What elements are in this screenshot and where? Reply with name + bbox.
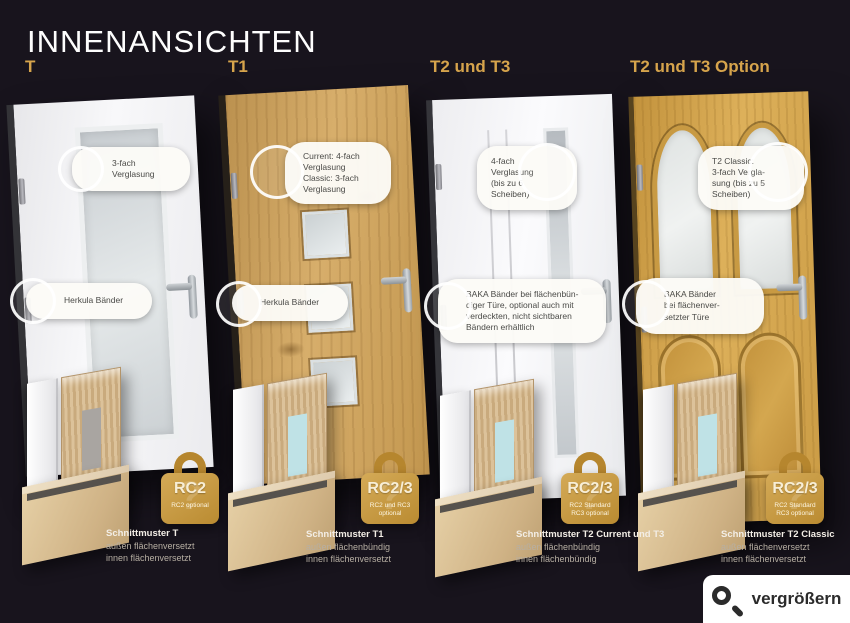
rc-lock-badge-t2t3-option: ? RC2/3 RC2 Standard RC3 optional	[766, 452, 824, 526]
callout-text: 3-fach Verglasung	[112, 158, 155, 180]
caption-t2t3: Schnittmuster T2 Current und T3 außen fl…	[516, 528, 676, 566]
callout-ring	[10, 278, 56, 324]
door-handle-icon	[402, 268, 412, 312]
hinge-icon	[435, 164, 442, 190]
glass-square	[301, 209, 349, 258]
callout-ring	[424, 282, 472, 330]
zoom-button[interactable]: vergrößern	[703, 575, 850, 623]
page: INNENANSICHTEN T T1 T2 und T3 T2 und T3 …	[0, 0, 850, 623]
lock-rating: RC2/3	[361, 480, 419, 498]
callout-text: Herkula Bänder	[260, 297, 319, 308]
door-handle-icon	[188, 274, 198, 318]
caption-t: Schnittmuster T außen flächenversetzt in…	[106, 527, 246, 565]
caption-title: Schnittmuster T2 Classic	[721, 528, 850, 541]
caption-line: außen flächenversetzt	[721, 541, 850, 553]
column-header-t: T	[25, 57, 35, 77]
callout-ring	[748, 142, 808, 202]
callout-ring	[622, 280, 670, 328]
caption-title: Schnittmuster T2 Current und T3	[516, 528, 676, 541]
caption-t2t3-option: Schnittmuster T2 Classic außen flächenve…	[721, 528, 850, 566]
caption-line: innen flächenbündig	[516, 553, 676, 565]
magnifier-icon	[712, 584, 742, 614]
callout-text: BAKA Bänder bei flächenver- setzter Türe	[664, 289, 720, 322]
caption-line: innen flächenversetzt	[721, 553, 850, 565]
caption-line: innen flächenversetzt	[106, 552, 246, 564]
zoom-button-label: vergrößern	[752, 589, 842, 609]
callout-text: Herkula Bänder	[64, 295, 123, 306]
hinge-icon	[231, 173, 238, 199]
hinge-icon	[636, 165, 643, 191]
lock-rating: RC2/3	[766, 480, 824, 498]
column-header-t2t3-option: T2 und T3 Option	[630, 57, 770, 77]
callout-text: BAKA Bänder bei flächenbün- diger Türe, …	[466, 289, 578, 333]
page-title: INNENANSICHTEN	[27, 24, 317, 60]
callout-text: Current: 4-fach Verglasung Classic: 3-fa…	[303, 151, 360, 195]
caption-line: außen flächenversetzt	[106, 540, 246, 552]
door-handle-icon	[798, 275, 807, 319]
rc-lock-badge-t2t3: ? RC2/3 RC2 Standard RC3 optional	[561, 452, 619, 526]
column-header-t2t3: T2 und T3	[430, 57, 510, 77]
lock-note: RC2 Standard RC3 optional	[561, 502, 619, 519]
rc-lock-badge-t: ? RC2 RC2 optional	[161, 452, 219, 526]
caption-title: Schnittmuster T1	[306, 528, 446, 541]
hinge-icon	[18, 179, 25, 205]
lock-note: RC2 Standard RC3 optional	[766, 502, 824, 519]
lock-note: RC2 optional	[161, 502, 219, 510]
lock-note: RC2 und RC3 optional	[361, 502, 419, 519]
column-header-t1: T1	[228, 57, 248, 77]
rc-lock-badge-t1: ? RC2/3 RC2 und RC3 optional	[361, 452, 419, 526]
caption-line: außen flächenbündig	[516, 541, 676, 553]
caption-line: innen flächenversetzt	[306, 553, 446, 565]
callout-ring	[216, 281, 262, 327]
caption-t1: Schnittmuster T1 außen flächenbündig inn…	[306, 528, 446, 566]
callout-ring	[58, 146, 104, 192]
lock-rating: RC2/3	[561, 480, 619, 498]
caption-line: außen flächenbündig	[306, 541, 446, 553]
caption-title: Schnittmuster T	[106, 527, 246, 540]
lock-rating: RC2	[161, 480, 219, 498]
callout-ring	[250, 145, 304, 199]
callout-ring	[518, 143, 576, 201]
